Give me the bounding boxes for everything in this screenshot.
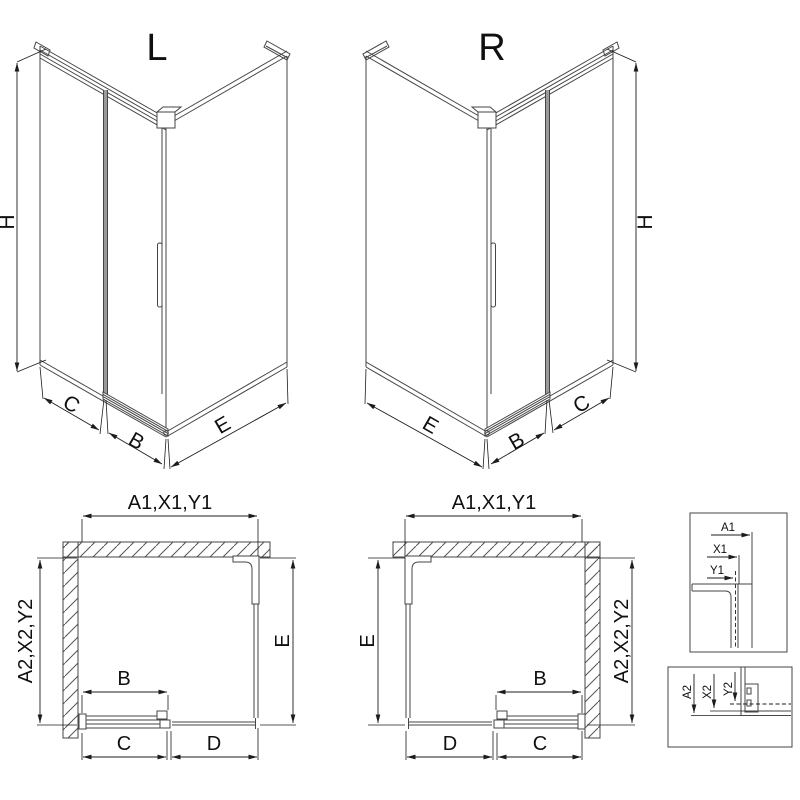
door-roller xyxy=(157,711,167,719)
iso-left-dimensions: H C B E xyxy=(0,49,288,469)
plan-right-door xyxy=(409,711,586,729)
detail-top-callouts: A1 X1 Y1 xyxy=(707,522,750,578)
dim-label-e: E xyxy=(272,634,294,647)
corner-profile xyxy=(405,556,431,604)
wall-hatch-top xyxy=(63,542,270,557)
plan-right-walls xyxy=(393,542,600,738)
iso-right-structure xyxy=(363,41,619,437)
iso-left-structure xyxy=(34,41,290,437)
dim-label-h: H xyxy=(634,214,657,229)
plan-left-glass xyxy=(233,556,259,718)
plan-left-door xyxy=(79,711,256,729)
plan-view-left: A1,X1,Y1 A2,X2,Y2 E B C D xyxy=(15,492,296,760)
iso-right-title: R xyxy=(478,27,505,69)
dim-label-a2x2y2: A2,X2,Y2 xyxy=(15,599,37,684)
dim-label-b: B xyxy=(533,668,546,690)
detail-label-x2: X2 xyxy=(702,685,714,699)
detail-box-bottom: A2 X2 Y2 xyxy=(668,667,792,747)
dim-label-a1x1y1: A1,X1,Y1 xyxy=(452,492,537,514)
dim-label-h: H xyxy=(0,214,19,229)
dim-label-b: B xyxy=(124,428,148,455)
door-guide xyxy=(494,720,504,728)
fixed-panel-line xyxy=(172,718,256,729)
detail-border xyxy=(668,667,792,747)
dim-label-e: E xyxy=(357,634,379,647)
detail-bottom-structure xyxy=(730,667,791,716)
side-glass xyxy=(254,604,258,718)
plan-left-walls xyxy=(63,542,270,738)
door-panel xyxy=(86,716,162,728)
wall-hatch-right xyxy=(585,542,600,738)
corner-profile xyxy=(233,556,259,604)
dim-label-a1x1y1: A1,X1,Y1 xyxy=(128,492,213,514)
dim-label-b: B xyxy=(117,668,130,690)
detail-label-a2: A2 xyxy=(682,685,694,699)
door-roller xyxy=(497,711,507,719)
wall-hatch-top xyxy=(393,542,600,557)
corner-cap xyxy=(472,107,496,128)
corner-cap xyxy=(157,107,181,128)
door-endcap xyxy=(79,714,86,729)
detail-label-y1: Y1 xyxy=(710,565,724,577)
glass-walls xyxy=(40,51,287,437)
fixed-panel-line xyxy=(409,718,493,729)
side-glass xyxy=(406,604,410,718)
technical-drawing-sheet: L xyxy=(0,0,800,800)
dim-label-c: C xyxy=(59,391,84,419)
door-endcap xyxy=(578,714,585,729)
detail-bottom-callouts: A2 X2 Y2 xyxy=(682,672,745,716)
dim-label-e: E xyxy=(211,412,235,439)
dim-label-c: C xyxy=(533,733,547,755)
detail-box-top: A1 X1 Y1 xyxy=(690,513,787,652)
detail-label-a1: A1 xyxy=(721,522,735,534)
iso-view-right: R xyxy=(363,27,657,469)
door-panel xyxy=(502,716,578,728)
detail-label-y2: Y2 xyxy=(723,682,735,696)
plan-view-right: A1,X1,Y1 E A2,X2,Y2 B D C xyxy=(357,492,635,760)
detail-label-x1: X1 xyxy=(713,544,727,556)
dim-label-c: C xyxy=(569,391,594,419)
wall-hatch-left xyxy=(63,542,78,738)
door-handle xyxy=(491,243,496,307)
dim-label-e: E xyxy=(418,412,442,439)
glass-walls xyxy=(366,51,613,437)
dim-label-c: C xyxy=(117,733,131,755)
dim-label-d: D xyxy=(207,733,221,755)
door-guide xyxy=(160,720,170,728)
iso-left-title: L xyxy=(146,27,167,69)
dim-label-a2x2y2: A2,X2,Y2 xyxy=(611,599,633,684)
iso-view-left: L xyxy=(0,27,290,469)
door-handle xyxy=(158,243,163,307)
dim-label-b: B xyxy=(505,428,529,455)
plan-right-glass xyxy=(405,556,431,718)
dim-label-d: D xyxy=(443,733,457,755)
